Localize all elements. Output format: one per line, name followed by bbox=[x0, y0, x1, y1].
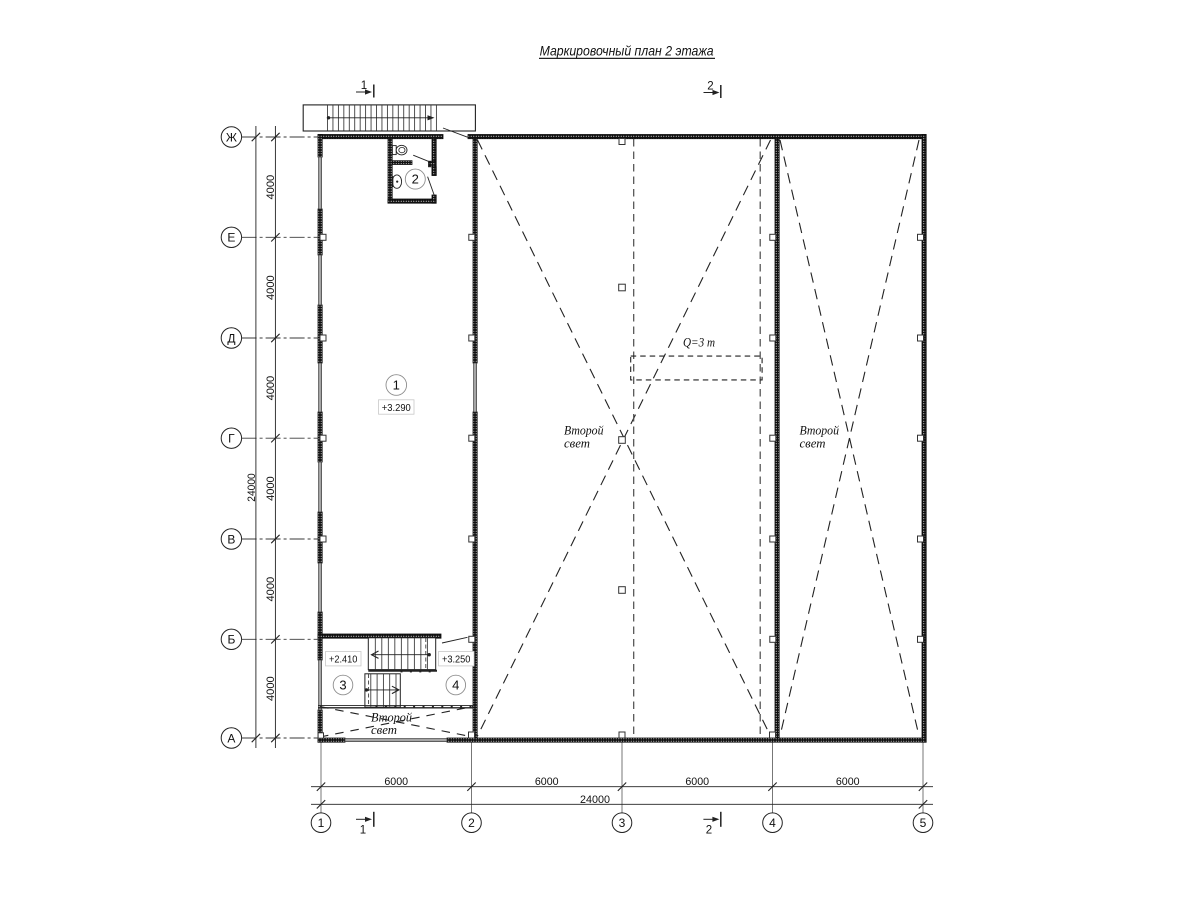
svg-text:4000: 4000 bbox=[265, 175, 277, 200]
svg-text:+3.290: +3.290 bbox=[382, 402, 411, 414]
svg-text:Маркировочный план 2 этажа: Маркировочный план 2 этажа bbox=[540, 43, 714, 59]
svg-text:Второй: Второй bbox=[564, 424, 604, 438]
svg-text:А: А bbox=[227, 731, 235, 745]
svg-text:4000: 4000 bbox=[265, 676, 277, 701]
svg-text:4000: 4000 bbox=[265, 476, 277, 501]
svg-text:4: 4 bbox=[452, 678, 459, 693]
svg-text:Второй: Второй bbox=[800, 424, 840, 438]
svg-text:2: 2 bbox=[412, 172, 419, 187]
svg-text:6000: 6000 bbox=[685, 776, 709, 788]
svg-text:24000: 24000 bbox=[246, 473, 258, 501]
svg-text:+2.410: +2.410 bbox=[329, 654, 358, 666]
svg-text:2: 2 bbox=[706, 825, 712, 837]
svg-text:6000: 6000 bbox=[836, 776, 860, 788]
svg-text:1: 1 bbox=[393, 378, 400, 393]
svg-text:свет: свет bbox=[371, 723, 397, 737]
svg-text:свет: свет bbox=[564, 437, 590, 451]
svg-text:1: 1 bbox=[360, 825, 366, 837]
svg-text:4: 4 bbox=[769, 816, 776, 830]
svg-text:1: 1 bbox=[318, 816, 325, 830]
svg-text:+3.250: +3.250 bbox=[442, 654, 471, 666]
svg-text:свет: свет bbox=[800, 437, 826, 451]
svg-text:Г: Г bbox=[228, 432, 235, 446]
svg-text:3: 3 bbox=[619, 816, 626, 830]
svg-text:4000: 4000 bbox=[265, 577, 277, 602]
svg-text:4000: 4000 bbox=[265, 376, 277, 401]
svg-text:3: 3 bbox=[339, 678, 346, 693]
svg-text:Б: Б bbox=[227, 633, 235, 647]
svg-text:5: 5 bbox=[920, 816, 927, 830]
svg-text:2: 2 bbox=[468, 816, 475, 830]
svg-text:24000: 24000 bbox=[580, 794, 610, 806]
svg-text:Д: Д bbox=[227, 331, 235, 345]
svg-text:Е: Е bbox=[227, 231, 235, 245]
svg-text:Ж: Ж bbox=[226, 130, 237, 144]
svg-text:Q=3 т: Q=3 т bbox=[683, 336, 715, 350]
svg-text:В: В bbox=[227, 532, 235, 546]
svg-text:6000: 6000 bbox=[535, 776, 559, 788]
svg-text:4000: 4000 bbox=[265, 275, 277, 300]
svg-text:6000: 6000 bbox=[384, 776, 408, 788]
